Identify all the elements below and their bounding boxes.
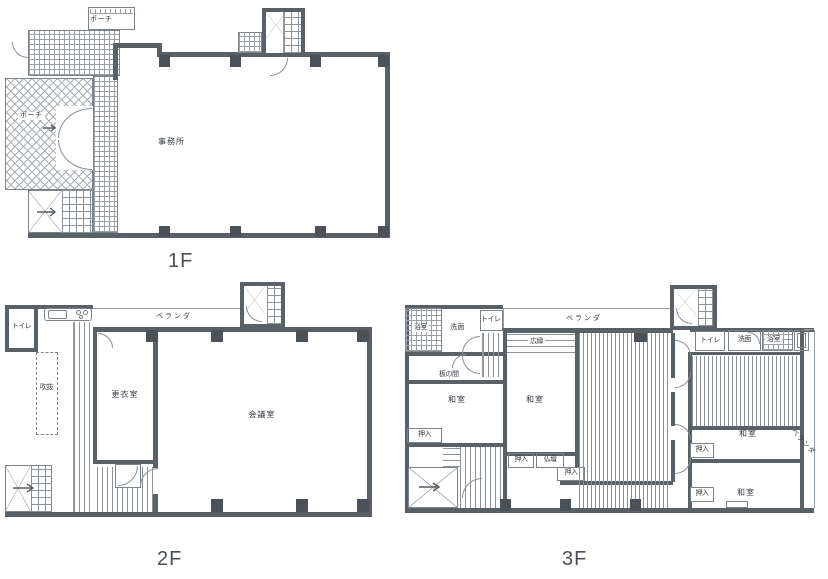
room-label-office: 事務所: [158, 138, 185, 147]
column: [500, 499, 511, 511]
door-arc: [675, 340, 691, 356]
column: [357, 499, 369, 512]
room-label-porch: ポーチ: [18, 112, 45, 120]
room-label-washitsu-a: 和室: [448, 396, 466, 405]
room-label-washitsu-d: 和室: [737, 489, 755, 498]
room-label-toilet-left: トイレ: [481, 316, 501, 324]
column: [378, 226, 389, 237]
wall: [5, 512, 372, 517]
direction-arrow-icon: [42, 124, 58, 132]
room-label-itanoma: 板の間: [437, 371, 461, 379]
column: [159, 55, 170, 67]
veranda-edge: [804, 329, 814, 330]
door-arc: [452, 354, 466, 368]
column: [211, 499, 223, 512]
door-arc: [462, 336, 480, 354]
column: [560, 499, 571, 511]
room-label-void: 吹抜: [40, 384, 53, 392]
room-label-toilet-right: トイレ: [695, 337, 725, 345]
kitchen-sink: [48, 310, 67, 319]
room-label-butsudan: 仏壇: [536, 456, 564, 464]
void-outline: [36, 352, 58, 435]
porch-top-hatch: [90, 9, 133, 14]
stove-burner: [83, 310, 88, 315]
room-label-washroom-left: 洗面: [450, 324, 465, 332]
wall: [385, 52, 390, 238]
stove-burner: [79, 315, 83, 319]
stair-divider: [283, 12, 284, 53]
entry-hatch-strip: [93, 76, 118, 233]
canopy-hatch: [28, 30, 120, 76]
wood-floor-room: [692, 356, 800, 426]
stair-arrow-icon: [418, 481, 444, 493]
room-label-oshiire-a: 押入: [407, 431, 442, 439]
wall: [671, 392, 675, 426]
wall: [93, 327, 372, 332]
veranda-edge: [814, 330, 815, 508]
column: [159, 226, 170, 237]
column: [310, 55, 321, 67]
door-arc: [270, 58, 288, 76]
room-label-bath-right: 浴室: [765, 336, 782, 344]
room-label-veranda: ベランダ: [156, 313, 192, 321]
veranda-edge: [503, 308, 504, 328]
room-label-oshiire-b: 押入: [508, 456, 534, 464]
column: [634, 333, 647, 342]
wall: [153, 327, 158, 468]
wall: [690, 352, 802, 355]
column: [296, 499, 308, 512]
stair-treads: [482, 333, 503, 377]
column: [230, 55, 241, 67]
room-label-toilet: トイレ: [6, 323, 37, 331]
room-label-meeting-room: 会議室: [232, 411, 292, 420]
wall: [688, 459, 802, 463]
room-label-oshiire-d: 押入: [690, 446, 714, 454]
column: [630, 499, 641, 511]
door-arc: [98, 333, 113, 348]
room-label-veranda-top: ベランダ: [566, 315, 602, 323]
column: [378, 55, 389, 67]
veranda-edge: [503, 308, 670, 309]
wall: [405, 380, 505, 384]
room-label-porch-canopy: ポーチ: [90, 16, 113, 24]
stair-treads: [62, 190, 93, 233]
room-label-washitsu-c: 和室: [737, 430, 759, 439]
wall: [503, 328, 507, 508]
room-label-hiroen: 広縁: [528, 338, 545, 346]
stair-arrow-icon: [12, 482, 38, 494]
column: [296, 330, 308, 342]
tub: [797, 333, 806, 348]
corridor-floor: [73, 322, 93, 512]
stair-arrow-icon: [36, 206, 60, 218]
stair-treads: [443, 447, 460, 467]
wall: [28, 233, 390, 238]
floor-plan-sheet: ポーチ ポーチ 事務所: [0, 0, 828, 579]
floor-title-3f: 3F: [562, 548, 622, 571]
room-label-bath-left: 浴室: [412, 324, 429, 332]
wall: [405, 508, 814, 513]
stair-treads: [267, 286, 281, 324]
wall: [153, 494, 158, 517]
wall-notch: [726, 501, 748, 508]
room-label-washitsu-b: 和室: [526, 396, 544, 405]
floor-title-1f: 1F: [168, 250, 228, 273]
column: [211, 330, 223, 342]
wood-floor-hall: [579, 333, 671, 508]
column: [230, 226, 241, 237]
column: [146, 330, 158, 342]
wall: [113, 43, 118, 80]
room-label-oshiire-e: 押入: [690, 490, 714, 498]
door-arc: [12, 42, 28, 58]
stair-treads: [284, 12, 301, 53]
stair-treads: [698, 289, 713, 326]
wall: [113, 43, 162, 48]
veranda-edge: [93, 308, 240, 309]
wall: [367, 327, 372, 517]
column: [315, 226, 326, 237]
duct-hatch: [238, 32, 262, 53]
column: [357, 330, 369, 342]
floor-title-2f: 2F: [157, 548, 217, 571]
wall: [800, 328, 804, 508]
room-label-changing-room: 更衣室: [97, 391, 153, 400]
